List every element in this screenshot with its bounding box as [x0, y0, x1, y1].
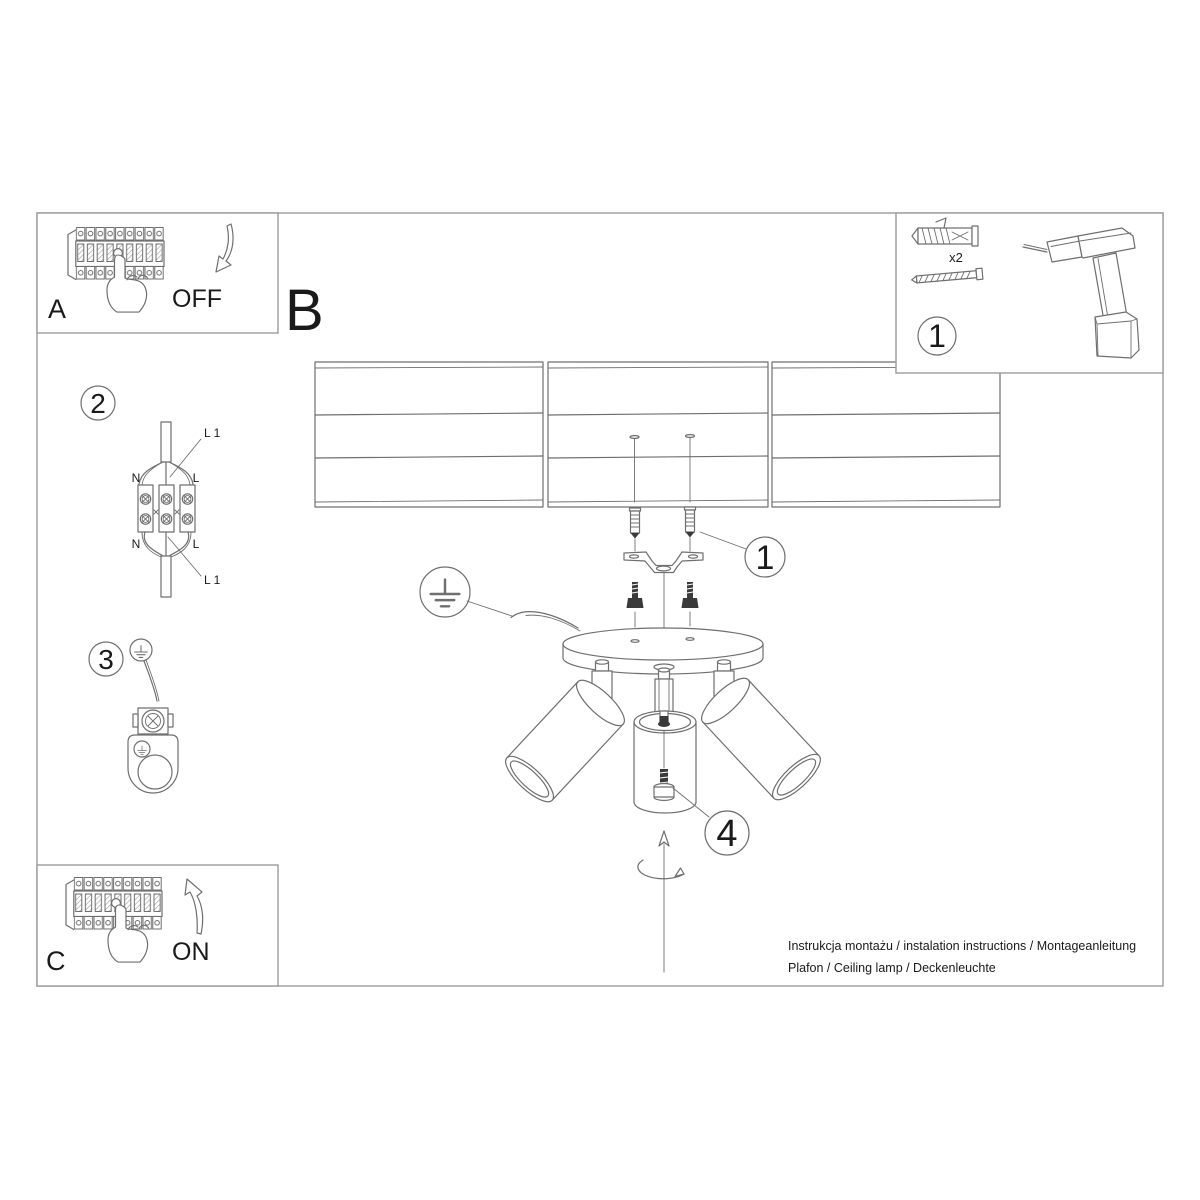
- wire-label-l1-bottom: L 1: [204, 573, 221, 587]
- instruction-sheet: A OFF B x2: [0, 0, 1200, 1200]
- footer-line-2: Plafon / Ceiling lamp / Deckenleuchte: [788, 961, 996, 975]
- on-label: ON: [172, 938, 210, 966]
- wall-plug-icon: [685, 507, 696, 538]
- kit-box: x2: [896, 213, 1163, 373]
- lamp-wire: [511, 612, 578, 628]
- step-kit-number: 1: [928, 318, 946, 354]
- step-adjust-number: 4: [716, 813, 737, 855]
- step-grounding-number: 3: [98, 644, 114, 675]
- wall-plug-icon: [630, 508, 641, 539]
- wire-label-l1-top: L 1: [204, 426, 221, 440]
- wire-label-n-bottom: N: [132, 537, 141, 551]
- diagram-canvas: A OFF B x2: [0, 0, 1200, 1200]
- wire-label-l-bottom: L: [193, 537, 200, 551]
- ground-wire: [144, 661, 157, 701]
- ceiling-screw: [686, 435, 695, 438]
- ceiling-screw: [630, 436, 639, 439]
- step-2-wiring: 2 N L N L: [81, 386, 221, 597]
- section-c-power-on: C ON: [37, 865, 278, 986]
- section-a-label: A: [48, 294, 66, 324]
- ceiling-panel: [548, 362, 768, 507]
- wire-label-l-top: L: [193, 471, 200, 485]
- step-wiring-number: 2: [90, 388, 106, 419]
- ground-wire: [146, 660, 159, 701]
- terminal-block: [138, 422, 195, 597]
- anchor-qty-label: x2: [949, 250, 963, 265]
- section-b-label: B: [285, 278, 324, 343]
- section-a-power-off: A OFF: [37, 213, 278, 333]
- step-3-grounding: 3: [89, 639, 178, 793]
- ceiling-panels: [315, 362, 1000, 507]
- lamp-assembly: 4: [420, 567, 827, 972]
- footer-line-1: Instrukcja montażu / instalation instruc…: [788, 939, 1136, 953]
- ground-clamp: [128, 708, 178, 793]
- mounting-bracket: [624, 552, 703, 573]
- bracket-screw: [682, 582, 699, 608]
- rotation-arrow-icon: [638, 831, 684, 972]
- ceiling-panel: [315, 362, 543, 507]
- leader-line: [700, 532, 746, 549]
- circuit-breaker-icon: [66, 877, 162, 930]
- ceiling-panel: [772, 362, 1000, 507]
- leader-line: [467, 601, 512, 616]
- step-fixing-number: 1: [756, 539, 775, 577]
- section-c-label: C: [46, 946, 66, 976]
- off-label: OFF: [172, 285, 222, 313]
- footer: Instrukcja montażu / instalation instruc…: [788, 939, 1136, 975]
- wire-label-n-top: N: [132, 471, 141, 485]
- spot-shade-middle: [634, 711, 696, 813]
- bracket-screw: [627, 582, 644, 608]
- lamp-wire: [526, 615, 580, 631]
